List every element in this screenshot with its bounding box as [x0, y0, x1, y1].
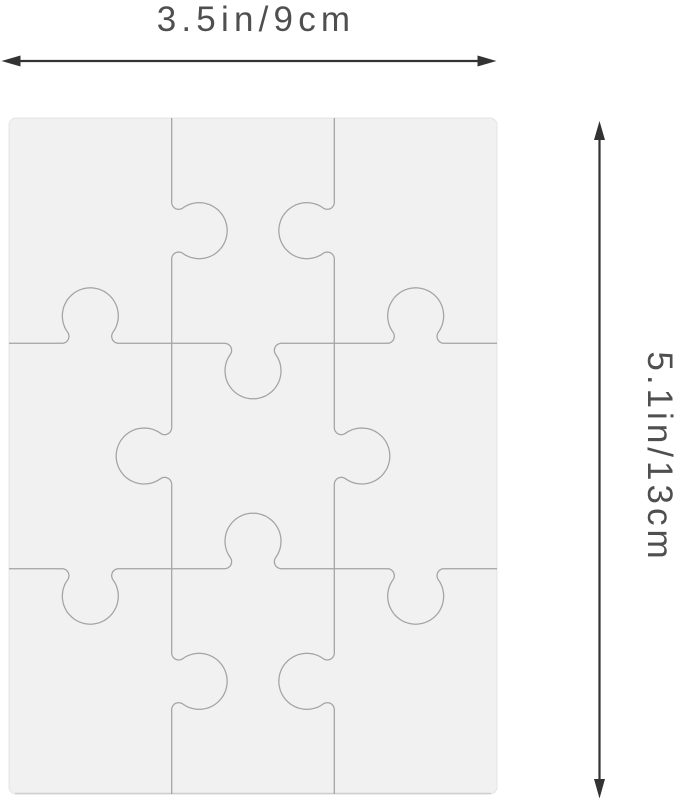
svg-text:5.1in/13cm: 5.1in/13cm [640, 351, 679, 562]
svg-text:3.5in/9cm: 3.5in/9cm [157, 0, 356, 39]
